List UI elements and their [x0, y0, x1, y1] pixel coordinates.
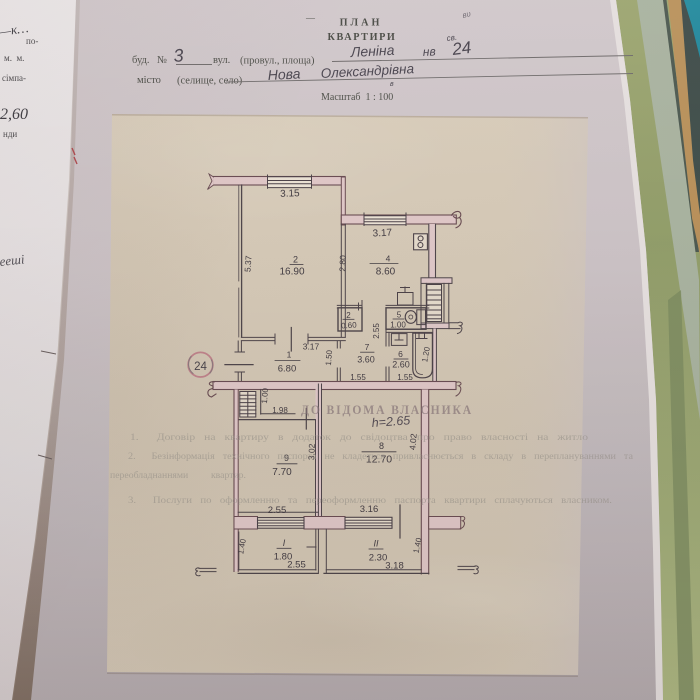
- svg-text:3.17: 3.17: [372, 227, 392, 239]
- svg-text:6: 6: [398, 349, 403, 359]
- svg-text:2.60: 2.60: [392, 360, 410, 370]
- svg-text:3.15: 3.15: [280, 188, 300, 200]
- svg-text:ееші: ееші: [0, 251, 26, 269]
- svg-text:1.40: 1.40: [236, 538, 248, 555]
- svg-text:вʋ: вʋ: [461, 9, 472, 20]
- svg-text:3: 3: [173, 45, 185, 66]
- svg-text:7.70: 7.70: [272, 467, 292, 478]
- svg-text:Нова: Нова: [267, 65, 301, 83]
- svg-text:1. Договір на квартиру в дода: 1. Договір на квартиру в додаток до свід…: [130, 433, 588, 443]
- svg-text:(селище, село): (селище, село): [177, 76, 243, 87]
- svg-text:I: I: [283, 538, 286, 548]
- svg-text:м. м.: м. м.: [4, 53, 24, 63]
- svg-text:7: 7: [365, 342, 370, 352]
- svg-text:16.90: 16.90: [279, 267, 304, 278]
- svg-text:5.37: 5.37: [242, 255, 253, 272]
- svg-text:8.60: 8.60: [376, 267, 396, 278]
- svg-text:1.55: 1.55: [350, 373, 366, 382]
- svg-text:2: 2: [293, 255, 298, 265]
- svg-text:в: в: [390, 81, 394, 88]
- svg-text:2.80: 2.80: [337, 255, 348, 272]
- svg-text:5: 5: [397, 311, 402, 320]
- svg-text:місто: місто: [137, 75, 161, 86]
- svg-text:1.55: 1.55: [397, 373, 413, 382]
- svg-text:переобладнаннями квартир.: переобладнаннями квартир.: [110, 470, 246, 481]
- svg-text:2.55: 2.55: [268, 505, 287, 516]
- svg-text:4: 4: [386, 254, 391, 264]
- svg-text:св.: св.: [446, 33, 458, 43]
- svg-text:буд.: буд.: [132, 55, 150, 66]
- svg-text:нв: нв: [422, 44, 436, 59]
- svg-text:1.00: 1.00: [390, 321, 406, 330]
- svg-text:2.55: 2.55: [287, 560, 306, 571]
- svg-text:0.60: 0.60: [341, 320, 358, 330]
- svg-text:2.55: 2.55: [372, 323, 381, 339]
- svg-text:24: 24: [194, 361, 207, 373]
- svg-text:Масштаб 1 : 100: Масштаб 1 : 100: [321, 92, 393, 103]
- svg-text:сімпа-: сімпа-: [2, 73, 26, 83]
- svg-text:2,60: 2,60: [0, 106, 28, 123]
- svg-text:нди: нди: [3, 129, 17, 139]
- svg-text:2: 2: [346, 311, 351, 320]
- svg-text:h=2.65: h=2.65: [371, 413, 411, 430]
- svg-text:Леніна: Леніна: [349, 42, 395, 60]
- svg-text:3. Послуги по оформленню та п: 3. Послуги по оформленню та переоформлен…: [128, 495, 612, 506]
- svg-text:—: —: [305, 13, 316, 23]
- svg-text:(провул., площа): (провул., площа): [240, 56, 315, 67]
- svg-text:по-: по-: [26, 36, 38, 46]
- svg-text:№: №: [157, 55, 167, 66]
- svg-text:6.80: 6.80: [278, 364, 297, 375]
- svg-text:1.20: 1.20: [420, 346, 432, 363]
- svg-text:1.00: 1.00: [260, 387, 270, 404]
- svg-text:3.60: 3.60: [357, 355, 375, 365]
- svg-text:вул.: вул.: [213, 55, 230, 66]
- svg-text:1: 1: [287, 350, 292, 360]
- svg-text:3.17: 3.17: [303, 342, 320, 352]
- svg-text:II: II: [373, 539, 379, 549]
- svg-text:1.50: 1.50: [324, 349, 334, 366]
- svg-text:—к…: —к…: [0, 20, 29, 39]
- svg-text:2. Безінформація технічного п: 2. Безінформація технічного паспорта не …: [128, 451, 634, 462]
- svg-text:3.18: 3.18: [385, 561, 404, 572]
- svg-text:ПЛАН: ПЛАН: [340, 18, 383, 29]
